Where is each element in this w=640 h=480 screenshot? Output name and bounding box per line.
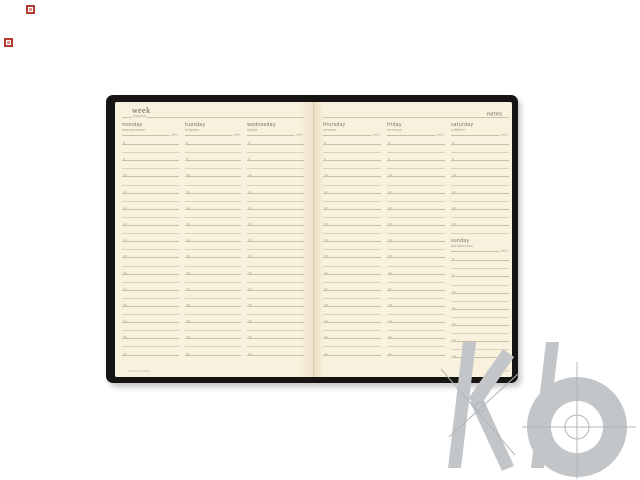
ruled-line: 13 — [185, 218, 242, 226]
ruled-line: 8 — [323, 137, 381, 145]
ruled-line — [247, 258, 304, 266]
ruled-line — [122, 258, 179, 266]
ruled-line: 16 — [247, 267, 304, 275]
ruled-line: 11 — [185, 186, 242, 194]
date-line: date — [247, 135, 304, 136]
ruled-line — [323, 177, 381, 185]
ruled-line — [387, 242, 445, 250]
ruled-line: 12 — [387, 202, 445, 210]
ruled-line: 10 — [387, 169, 445, 177]
page-footer: bruno visconti — [128, 370, 149, 374]
date-label: date — [436, 133, 445, 137]
ruled-line — [185, 307, 242, 315]
ruled-line: 12 — [247, 202, 304, 210]
ruled-line — [122, 194, 179, 202]
ruled-line — [323, 210, 381, 218]
ruled-line: 19 — [247, 315, 304, 323]
ruled-line — [451, 326, 509, 334]
ruled-line: 11 — [247, 186, 304, 194]
ruled-line — [185, 291, 242, 299]
day-header: tuesdayвторникdate — [185, 122, 242, 137]
ruled-line: 10 — [122, 169, 179, 177]
ruled-line: 11 — [387, 186, 445, 194]
ruled-line — [122, 275, 179, 283]
day-name-ru: пятница — [387, 128, 402, 132]
date-line: date — [451, 135, 509, 136]
ruled-line: 12 — [451, 318, 509, 326]
day-name-ru: среда — [247, 128, 257, 132]
date-label: date — [295, 133, 304, 137]
ruled-line — [247, 291, 304, 299]
ruled-line: 13 — [451, 334, 509, 342]
ruled-lines: 89101112131415161718192021 — [247, 137, 304, 356]
ruled-line: 8 — [451, 253, 509, 261]
date-label: date — [500, 249, 509, 253]
day-header: sundayвоскресеньеdate — [451, 238, 509, 253]
ruled-line — [185, 242, 242, 250]
ruled-line — [323, 242, 381, 250]
ruled-lines: 89101112131415161718192021 — [387, 137, 445, 356]
day-columns-left: mondayпонедельникdate8910111213141516171… — [115, 122, 313, 356]
ruled-line: 16 — [185, 267, 242, 275]
ruled-line — [185, 275, 242, 283]
ruled-line — [451, 161, 509, 169]
hour-label: 21 — [388, 352, 392, 356]
ruled-line — [122, 226, 179, 234]
day-name: monday — [122, 122, 142, 128]
ruled-line — [247, 339, 304, 347]
day-header: wednesdayсредаdate — [247, 122, 304, 137]
ruled-line: 14 — [451, 350, 509, 358]
ruled-line — [247, 145, 304, 153]
ruled-line: 12 — [323, 202, 381, 210]
ruled-lines: 89101112131415161718192021 — [122, 137, 179, 356]
ruled-line — [387, 145, 445, 153]
page-footer: bruno visconti — [488, 370, 509, 374]
watermark-letter-b — [527, 377, 627, 477]
day-name: sunday — [451, 238, 469, 244]
day-columns-right: thursdayчетвергdate891011121314151617181… — [314, 122, 512, 358]
ruled-line — [122, 291, 179, 299]
ruled-line: 18 — [122, 299, 179, 307]
ruled-line: 11 — [451, 302, 509, 310]
ruled-line: 10 — [247, 169, 304, 177]
ruled-line — [451, 310, 509, 318]
day-column-saturday: saturdayсубботаdate8910111213sundayвоскр… — [451, 122, 509, 358]
page-subtitle: неделя — [132, 114, 147, 118]
ruled-line — [247, 161, 304, 169]
ruled-line — [451, 277, 509, 285]
day-header: saturdayсубботаdate — [451, 122, 509, 137]
ruled-line — [387, 323, 445, 331]
ruled-line — [247, 194, 304, 202]
ruled-line: 16 — [323, 267, 381, 275]
ruled-line: 14 — [185, 234, 242, 242]
ruled-line — [323, 291, 381, 299]
ruled-line — [387, 275, 445, 283]
watermark-letter-k — [470, 396, 514, 471]
ruled-line: 12 — [122, 202, 179, 210]
ruled-line — [185, 177, 242, 185]
ruled-line — [323, 307, 381, 315]
day-name-ru: вторник — [185, 128, 199, 132]
ruled-line: 9 — [247, 153, 304, 161]
ruled-line: 20 — [247, 331, 304, 339]
ruled-line — [122, 145, 179, 153]
ruled-line — [387, 161, 445, 169]
ruled-line: 20 — [122, 331, 179, 339]
day-column-wednesday: wednesdayсредаdate8910111213141516171819… — [247, 122, 304, 356]
date-label: date — [233, 133, 242, 137]
ruled-line — [387, 339, 445, 347]
header-rule — [122, 117, 304, 118]
notes-label: notes — [487, 111, 502, 117]
ruled-line: 17 — [122, 283, 179, 291]
ruled-line — [323, 339, 381, 347]
ruled-line — [185, 161, 242, 169]
day-name-ru: суббота — [451, 128, 465, 132]
ruled-line: 14 — [387, 234, 445, 242]
ruled-line — [387, 194, 445, 202]
ruled-line: 12 — [185, 202, 242, 210]
ruled-line — [387, 258, 445, 266]
ruled-line: 16 — [387, 267, 445, 275]
day-column-monday: mondayпонедельникdate8910111213141516171… — [122, 122, 179, 356]
ruled-lines: 891011121314 — [451, 253, 509, 358]
ruled-line — [323, 194, 381, 202]
date-line: date — [122, 135, 179, 136]
ruled-line — [247, 226, 304, 234]
ruled-line — [185, 323, 242, 331]
ruled-line — [451, 226, 509, 234]
ruled-line — [122, 161, 179, 169]
ruled-line: 15 — [387, 250, 445, 258]
ruled-line: 21 — [387, 347, 445, 355]
ruled-line: 12 — [451, 202, 509, 210]
planner-pages: week неделя mondayпонедельникdate8910111… — [115, 102, 512, 377]
ruled-line — [323, 258, 381, 266]
ruled-line — [185, 210, 242, 218]
ruled-line — [247, 275, 304, 283]
ruled-line: 15 — [185, 250, 242, 258]
ruled-line — [185, 226, 242, 234]
left-page: week неделя mondayпонедельникdate8910111… — [115, 102, 314, 377]
ruled-line — [122, 177, 179, 185]
ruled-line: 9 — [122, 153, 179, 161]
ruled-line — [387, 177, 445, 185]
ruled-line — [247, 177, 304, 185]
hour-label: 21 — [324, 352, 328, 356]
ruled-line: 21 — [185, 347, 242, 355]
print-mark-icon — [4, 38, 13, 47]
ruled-line: 21 — [323, 347, 381, 355]
ruled-line — [323, 323, 381, 331]
ruled-line: 14 — [323, 234, 381, 242]
ruled-line: 20 — [387, 331, 445, 339]
weekly-planner-book: week неделя mondayпонедельникdate8910111… — [106, 95, 518, 383]
left-page-header: week неделя — [115, 102, 313, 122]
day-column-thursday: thursdayчетвергdate891011121314151617181… — [323, 122, 381, 358]
date-line: date — [323, 135, 381, 136]
ruled-line: 18 — [247, 299, 304, 307]
ruled-line — [247, 242, 304, 250]
ruled-line — [323, 161, 381, 169]
hour-label: 14 — [452, 355, 456, 359]
ruled-line: 11 — [122, 186, 179, 194]
ruled-line: 19 — [323, 315, 381, 323]
date-label: date — [170, 133, 179, 137]
header-rule — [323, 117, 509, 118]
ruled-line — [387, 307, 445, 315]
ruled-line: 13 — [323, 218, 381, 226]
ruled-line: 16 — [122, 267, 179, 275]
ruled-line — [185, 194, 242, 202]
ruled-line: 15 — [247, 250, 304, 258]
day-column-tuesday: tuesdayвторникdate8910111213141516171819… — [185, 122, 242, 356]
ruled-line: 18 — [185, 299, 242, 307]
hour-label: 21 — [186, 352, 190, 356]
date-label: date — [500, 133, 509, 137]
ruled-line: 20 — [323, 331, 381, 339]
ruled-line: 8 — [451, 137, 509, 145]
day-header: fridayпятницаdate — [387, 122, 445, 137]
ruled-line — [247, 323, 304, 331]
ruled-line: 19 — [387, 315, 445, 323]
ruled-line: 8 — [247, 137, 304, 145]
ruled-line — [451, 210, 509, 218]
ruled-lines: 89101112131415161718192021 — [185, 137, 242, 356]
watermark-letter-b — [531, 342, 559, 468]
ruled-line: 11 — [323, 186, 381, 194]
ruled-line: 11 — [451, 186, 509, 194]
ruled-line: 9 — [451, 269, 509, 277]
ruled-line — [323, 226, 381, 234]
ruled-line — [387, 210, 445, 218]
ruled-line — [451, 261, 509, 269]
day-name: saturday — [451, 122, 473, 128]
ruled-line: 14 — [247, 234, 304, 242]
ruled-line: 10 — [185, 169, 242, 177]
right-page: notes thursdayчетвергdate891011121314151… — [314, 102, 512, 377]
ruled-line: 8 — [122, 137, 179, 145]
ruled-line: 19 — [185, 315, 242, 323]
ruled-line: 15 — [122, 250, 179, 258]
day-name: thursday — [323, 122, 346, 128]
ruled-line: 13 — [122, 218, 179, 226]
hour-label: 21 — [248, 352, 252, 356]
ruled-line: 10 — [451, 286, 509, 294]
hour-label: 21 — [123, 352, 127, 356]
day-name-ru: понедельник — [122, 128, 145, 132]
day-name: wednesday — [247, 122, 276, 128]
ruled-line: 15 — [323, 250, 381, 258]
day-name: friday — [387, 122, 402, 128]
ruled-line: 18 — [387, 299, 445, 307]
ruled-line: 9 — [451, 153, 509, 161]
date-line: date — [387, 135, 445, 136]
ruled-line — [323, 145, 381, 153]
ruled-line — [451, 177, 509, 185]
day-name: tuesday — [185, 122, 205, 128]
ruled-line — [122, 210, 179, 218]
ruled-line: 10 — [323, 169, 381, 177]
ruled-line: 8 — [387, 137, 445, 145]
ruled-line: 13 — [451, 218, 509, 226]
ruled-line — [122, 307, 179, 315]
date-line: date — [451, 251, 509, 252]
print-mark-icon — [26, 5, 35, 14]
ruled-line — [122, 323, 179, 331]
ruled-line: 21 — [247, 347, 304, 355]
ruled-line — [122, 242, 179, 250]
ruled-line: 14 — [122, 234, 179, 242]
ruled-line — [451, 342, 509, 350]
ruled-line: 13 — [247, 218, 304, 226]
ruled-lines: 8910111213 — [451, 137, 509, 234]
right-page-header: notes — [314, 102, 512, 122]
ruled-line: 10 — [451, 169, 509, 177]
ruled-line — [387, 226, 445, 234]
ruled-line — [247, 210, 304, 218]
ruled-line: 20 — [185, 331, 242, 339]
ruled-line: 18 — [323, 299, 381, 307]
ruled-line: 9 — [323, 153, 381, 161]
ruled-line: 17 — [387, 283, 445, 291]
day-name-ru: воскресенье — [451, 244, 473, 248]
ruled-line — [185, 339, 242, 347]
day-header: mondayпонедельникdate — [122, 122, 179, 137]
day-name-ru: четверг — [323, 128, 337, 132]
ruled-line — [451, 294, 509, 302]
ruled-line: 21 — [122, 347, 179, 355]
ruled-line — [451, 145, 509, 153]
ruled-line: 17 — [247, 283, 304, 291]
ruled-line: 9 — [387, 153, 445, 161]
ruled-line: 13 — [387, 218, 445, 226]
product-photo: week неделя mondayпонедельникdate8910111… — [0, 0, 640, 480]
ruled-line: 9 — [185, 153, 242, 161]
ruled-line — [247, 307, 304, 315]
date-label: date — [372, 133, 381, 137]
ruled-lines: 89101112131415161718192021 — [323, 137, 381, 356]
day-header: thursdayчетвергdate — [323, 122, 381, 137]
ruled-line — [387, 291, 445, 299]
ruled-line: 19 — [122, 315, 179, 323]
ruled-line — [185, 258, 242, 266]
day-column-friday: fridayпятницаdate89101112131415161718192… — [387, 122, 445, 358]
ruled-line: 8 — [185, 137, 242, 145]
ruled-line: 17 — [185, 283, 242, 291]
ruled-line — [323, 275, 381, 283]
ruled-line: 17 — [323, 283, 381, 291]
ruled-line — [185, 145, 242, 153]
ruled-line — [451, 194, 509, 202]
ruled-line — [122, 339, 179, 347]
date-line: date — [185, 135, 242, 136]
